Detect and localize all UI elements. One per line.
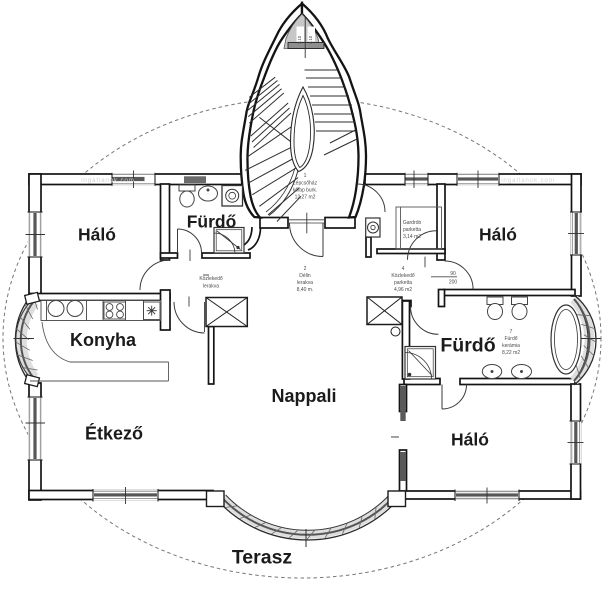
svg-text:8,22 m2: 8,22 m2 <box>502 350 520 356</box>
svg-text:parketta: parketta <box>403 227 421 233</box>
svg-text:ingatlanok.com: ingatlanok.com <box>81 177 135 184</box>
svg-text:90: 90 <box>450 271 456 277</box>
svg-text:Délin: Délin <box>299 273 311 279</box>
svg-text:1: 1 <box>304 173 307 179</box>
svg-text:12,27 m2: 12,27 m2 <box>295 195 316 201</box>
svg-text:4,96 m2: 4,96 m2 <box>394 287 412 293</box>
svg-text:2: 2 <box>304 266 307 272</box>
svg-text:Háló: Háló <box>451 430 489 450</box>
svg-text:Közlekedő: Közlekedő <box>199 276 223 282</box>
svg-text:8,40 m.: 8,40 m. <box>297 287 314 293</box>
svg-text:7: 7 <box>510 329 513 335</box>
svg-text:lerakva: lerakva <box>297 280 313 286</box>
svg-text:200: 200 <box>449 280 458 286</box>
svg-text:Közlekedő: Közlekedő <box>391 273 415 279</box>
svg-text:kőlap burk.: kőlap burk. <box>293 188 317 194</box>
svg-text:lerakva: lerakva <box>203 284 219 290</box>
svg-text:1.10: 1.10 <box>308 35 313 44</box>
svg-text:Nappali: Nappali <box>271 386 336 406</box>
svg-text:Fürdő: Fürdő <box>504 336 517 342</box>
svg-text:Lépcsőház: Lépcsőház <box>293 181 318 187</box>
svg-text:4: 4 <box>402 266 405 272</box>
svg-text:parketta: parketta <box>394 280 412 286</box>
svg-text:Háló: Háló <box>78 225 116 245</box>
svg-text:Háló: Háló <box>479 225 517 245</box>
svg-text:3,14 m2: 3,14 m2 <box>403 234 421 240</box>
svg-text:Fürdő: Fürdő <box>187 212 237 232</box>
svg-text:Terasz: Terasz <box>232 547 293 569</box>
svg-text:1.10: 1.10 <box>297 35 302 44</box>
svg-text:Fürdő: Fürdő <box>440 335 495 357</box>
svg-text:Étkező: Étkező <box>85 423 143 444</box>
svg-text:Gardrób: Gardrób <box>403 220 422 226</box>
svg-text:ingatlanok.com: ingatlanok.com <box>501 177 555 184</box>
svg-text:Konyha: Konyha <box>70 330 137 350</box>
svg-text:kerámia: kerámia <box>502 343 520 349</box>
